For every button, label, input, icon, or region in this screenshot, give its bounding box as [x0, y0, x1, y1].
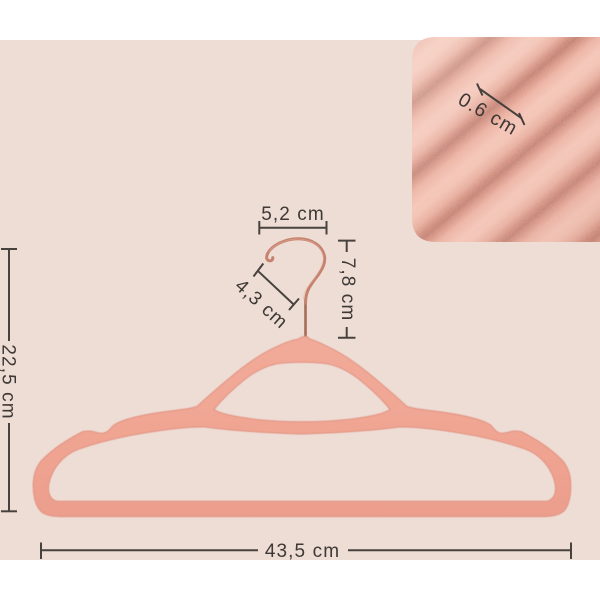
svg-text:43,5 cm: 43,5 cm	[265, 541, 340, 562]
svg-text:22,5 cm: 22,5 cm	[0, 344, 18, 419]
svg-text:5,2 cm: 5,2 cm	[261, 204, 325, 225]
svg-text:7,8 cm: 7,8 cm	[337, 258, 358, 322]
